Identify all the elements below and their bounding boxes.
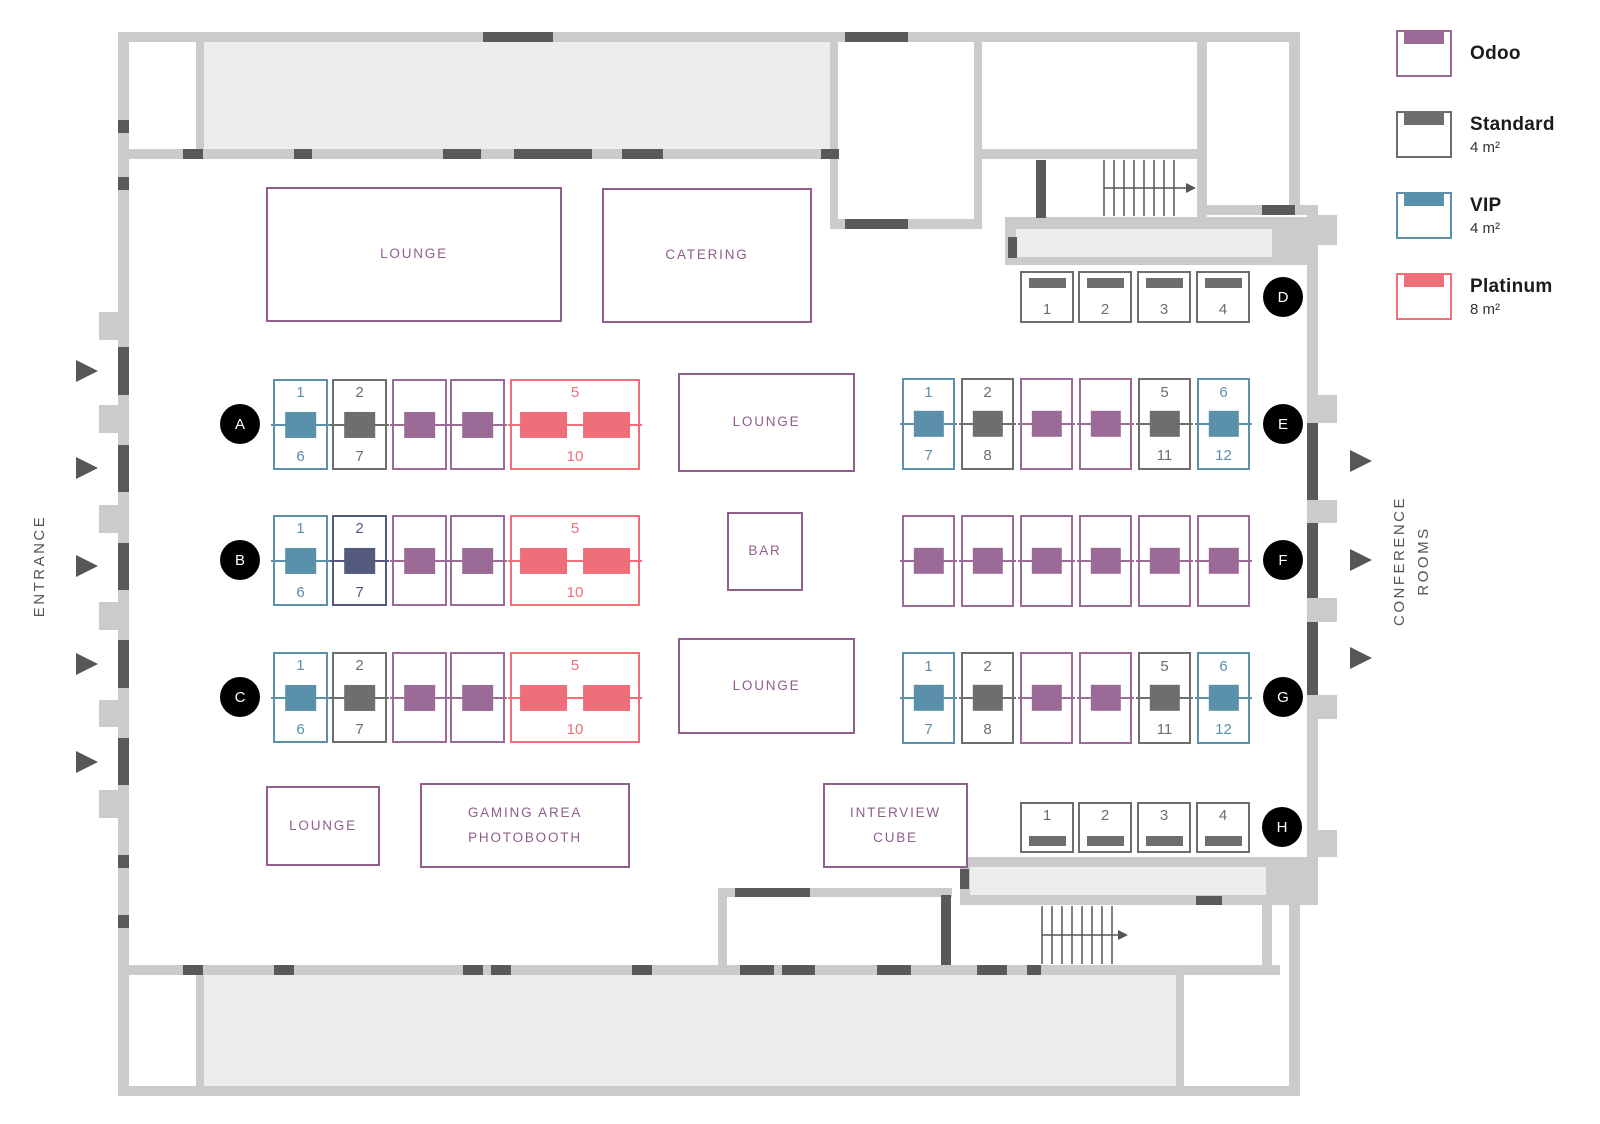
stairs-top-arrow-icon [1186,183,1196,193]
booth-desk-icon [344,684,376,710]
booth-number-top: 1 [275,384,326,401]
booth-number-top: 5 [512,384,638,401]
booth-B-1[interactable]: 16 [273,515,328,606]
booth-desk-icon [1149,411,1179,437]
booth-G-6[interactable]: 612 [1197,652,1250,744]
booth-desk-icon [972,685,1002,711]
booth-number-top: 2 [334,657,385,674]
booth-C-2[interactable]: 27 [332,652,387,743]
area-label: GAMING AREA [468,801,582,825]
entrance-arrow-icons [76,360,98,773]
booth-number-top: 2 [334,384,385,401]
area-label: LOUNGE [733,674,801,698]
row-badge-D: D [1263,277,1303,317]
booth-desk-icon [1029,278,1066,288]
booth-number-bottom: 7 [334,721,385,738]
booth-desk-icon [404,684,436,710]
booth-desk-icon [344,411,376,437]
booth-number-bottom: 12 [1199,721,1248,738]
legend: OdooStandard4 m²VIP4 m²Platinum8 m² [1396,30,1555,320]
booth-desk-icon [462,684,494,710]
booth-number: 4 [1198,807,1248,824]
booth-C-5[interactable]: 510 [510,652,640,743]
booth-desk-icon [520,547,568,573]
legend-item-platinum: Platinum8 m² [1396,273,1555,320]
stairs-top [1104,160,1186,216]
booth-desk-icon [972,411,1002,437]
booth-desk-icon [1149,548,1179,574]
booth-desk-icon [1087,836,1124,846]
booth-number-bottom: 11 [1140,447,1189,464]
booth-H-4[interactable]: 4 [1196,802,1250,853]
booth-C[interactable] [392,652,447,743]
booth-B[interactable] [450,515,505,606]
booth-H-2[interactable]: 2 [1078,802,1132,853]
booth-number-bottom: 7 [334,448,385,465]
booth-number-top: 6 [1199,384,1248,401]
area-gaming-photobooth: GAMING AREAPHOTOBOOTH [420,783,630,868]
area-label: LOUNGE [733,410,801,434]
booth-desk-icon [913,411,943,437]
booth-type-icon [1396,111,1452,158]
area-label: PHOTOBOOTH [468,826,582,850]
booth-desk-icon [1146,836,1183,846]
booth-desk-icon [583,411,631,437]
booth-desk-icon [520,684,568,710]
booth-number-bottom: 10 [512,584,638,601]
booth-desk-icon [285,684,317,710]
booth-desk-icon [285,411,317,437]
booth-F[interactable] [1138,515,1191,607]
area-lounge-top: LOUNGE [266,187,562,322]
booth-desk-icon [404,547,436,573]
booth-A[interactable] [450,379,505,470]
area-label: INTERVIEW [850,801,941,825]
row-badge-G: G [1263,677,1303,717]
booth-type-icon [1396,30,1452,77]
booth-desk-icon [1149,685,1179,711]
legend-name: Odoo [1470,43,1521,65]
booth-desk-icon [583,684,631,710]
booth-A-2[interactable]: 27 [332,379,387,470]
booth-desk-icon [404,411,436,437]
booth-H-3[interactable]: 3 [1137,802,1191,853]
booth-F[interactable] [961,515,1014,607]
booth-number-bottom: 10 [512,721,638,738]
booth-E[interactable] [1079,378,1132,470]
booth-number: 2 [1080,301,1130,318]
booth-desk-icon [1031,411,1061,437]
booth-A[interactable] [392,379,447,470]
booth-desk-icon [1205,836,1242,846]
area-lounge-low: LOUNGE [678,638,855,734]
booth-desk-icon [462,547,494,573]
area-label: LOUNGE [380,242,448,266]
booth-number-top: 6 [1199,658,1248,675]
booth-number-bottom: 6 [275,721,326,738]
row-badge-H: H [1262,807,1302,847]
booth-E-2[interactable]: 28 [961,378,1014,470]
booth-number-top: 1 [275,520,326,537]
row-badge-B: B [220,540,260,580]
legend-size: 4 m² [1470,220,1502,237]
booth-number-top: 2 [963,384,1012,401]
area-interview-cube: INTERVIEWCUBE [823,783,968,868]
booth-desk-icon [462,411,494,437]
booth-desk-icon [913,548,943,574]
booth-number-top: 2 [334,520,385,537]
booth-desk-icon [1029,836,1066,846]
conference-rooms-label: CONFERENCE ROOMS [1388,496,1436,626]
booth-number: 4 [1198,301,1248,318]
legend-size: 4 m² [1470,139,1555,156]
booth-D-4[interactable]: 4 [1196,271,1250,323]
booth-D-3[interactable]: 3 [1137,271,1191,323]
row-badge-E: E [1263,404,1303,444]
legend-size: 8 m² [1470,301,1553,318]
booth-number-bottom: 8 [963,447,1012,464]
booth-G-5[interactable]: 511 [1138,652,1191,744]
booth-type-icon [1396,192,1452,239]
booth-desk-icon [1146,278,1183,288]
booth-number-top: 1 [904,384,953,401]
booth-E-6[interactable]: 612 [1197,378,1250,470]
area-lounge-mid: LOUNGE [678,373,855,472]
booth-F[interactable] [1020,515,1073,607]
booth-number: 3 [1139,807,1189,824]
booth-F[interactable] [1079,515,1132,607]
booth-B-5[interactable]: 510 [510,515,640,606]
booth-G[interactable] [1079,652,1132,744]
stairs-bottom [1042,906,1118,964]
area-catering: CATERING [602,188,812,323]
booth-number-bottom: 7 [334,584,385,601]
booth-number-top: 2 [963,658,1012,675]
area-label: CUBE [873,826,918,850]
booth-G[interactable] [1020,652,1073,744]
booth-desk-icon [1208,685,1238,711]
booth-G-1[interactable]: 17 [902,652,955,744]
booth-number: 2 [1080,807,1130,824]
legend-item-odoo: Odoo [1396,30,1555,77]
booth-desk-icon [1090,548,1120,574]
booth-desk-icon [1208,411,1238,437]
booth-B[interactable] [392,515,447,606]
area-label: BAR [748,539,781,563]
booth-number-top: 5 [1140,384,1189,401]
booth-F[interactable] [1197,515,1250,607]
booth-D-2[interactable]: 2 [1078,271,1132,323]
booth-desk-icon [1090,411,1120,437]
booth-desk-icon [344,547,376,573]
entrance-label: ENTRANCE [28,515,52,618]
legend-name: Standard [1470,114,1555,136]
booth-desk-icon [972,548,1002,574]
booth-desk-icon [1031,685,1061,711]
legend-item-vip: VIP4 m² [1396,192,1555,239]
row-badge-F: F [1263,540,1303,580]
legend-name: VIP [1470,195,1502,217]
area-label: LOUNGE [289,814,357,838]
booth-number-bottom: 10 [512,448,638,465]
booth-desk-icon [913,685,943,711]
booth-D-1[interactable]: 1 [1020,271,1074,323]
booth-A-5[interactable]: 510 [510,379,640,470]
booth-number: 3 [1139,301,1189,318]
booth-desk-icon [1090,685,1120,711]
row-badge-A: A [220,404,260,444]
booth-number-bottom: 7 [904,447,953,464]
booth-A-1[interactable]: 16 [273,379,328,470]
area-bar: BAR [727,512,803,591]
booth-number-top: 5 [512,657,638,674]
legend-name: Platinum [1470,276,1553,298]
booth-desk-icon [1031,548,1061,574]
booth-number-top: 5 [512,520,638,537]
booth-number-top: 5 [1140,658,1189,675]
booth-number-top: 1 [275,657,326,674]
booth-desk-icon [1205,278,1242,288]
legend-item-standard: Standard4 m² [1396,111,1555,158]
booth-desk-icon [1208,548,1238,574]
booth-E-5[interactable]: 511 [1138,378,1191,470]
booth-number-top: 1 [904,658,953,675]
booth-number: 1 [1022,807,1072,824]
row-badge-C: C [220,677,260,717]
booth-desk-icon [520,411,568,437]
booth-number: 1 [1022,301,1072,318]
booth-number-bottom: 11 [1140,721,1189,738]
booth-desk-icon [1087,278,1124,288]
booth-type-icon [1396,273,1452,320]
booth-F[interactable] [902,515,955,607]
stairs-bottom-arrow-icon [1118,930,1128,940]
booth-desk-icon [285,547,317,573]
booth-G-2[interactable]: 28 [961,652,1014,744]
booth-C[interactable] [450,652,505,743]
booth-number-bottom: 8 [963,721,1012,738]
area-lounge-bottom: LOUNGE [266,786,380,866]
booth-E-1[interactable]: 17 [902,378,955,470]
booth-H-1[interactable]: 1 [1020,802,1074,853]
booth-C-1[interactable]: 16 [273,652,328,743]
booth-E[interactable] [1020,378,1073,470]
conference-arrow-icons [1350,450,1372,669]
booth-number-bottom: 6 [275,584,326,601]
booth-number-bottom: 12 [1199,447,1248,464]
booth-B-2[interactable]: 27 [332,515,387,606]
booth-number-bottom: 6 [275,448,326,465]
booth-desk-icon [583,547,631,573]
area-label: CATERING [665,243,748,267]
event-floor-plan: ENTRANCE CONFERENCE ROOMS OdooStandard4 … [0,0,1600,1124]
booth-number-bottom: 7 [904,721,953,738]
